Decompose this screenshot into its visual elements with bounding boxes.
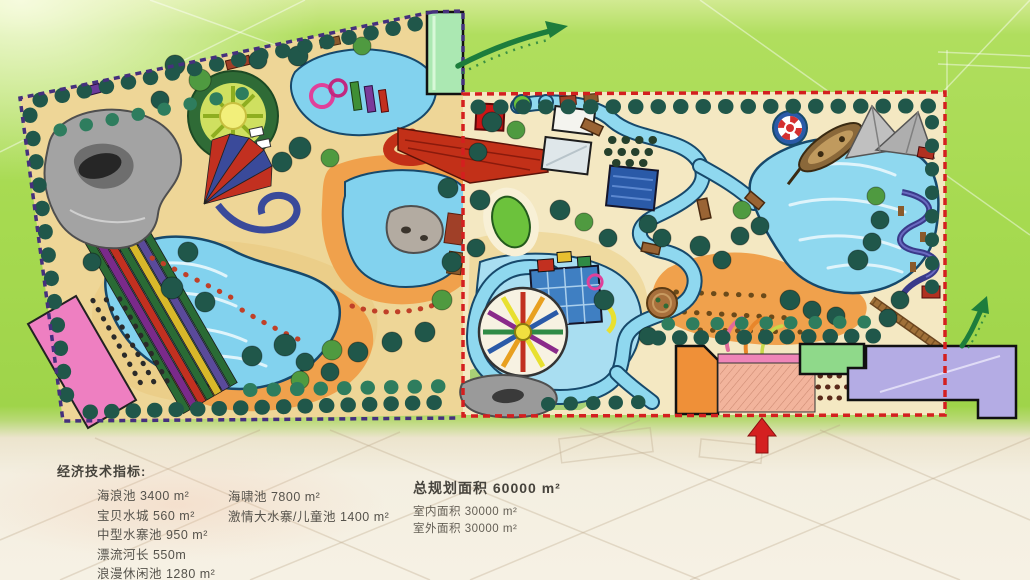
legend-column-1: 海浪池 3400 m² 宝贝水城 560 m² 中型水寨池 950 m² 漂流河…	[97, 487, 215, 580]
stat-wave-pool: 海浪池 3400 m²	[97, 487, 215, 507]
stat-kids-pool: 激情大水寨/儿童池 1400 m²	[228, 507, 389, 527]
legend-column-3: 总规划面积 60000 m² 室内面积 30000 m² 室外面积 30000 …	[413, 479, 561, 538]
stat-drift-river: 漂流河长 550m	[97, 546, 215, 566]
water-park-master-plan: 经济技术指标: 海浪池 3400 m² 宝贝水城 560 m² 中型水寨池 95…	[0, 0, 1030, 580]
legend-column-2: 海啸池 7800 m² 激情大水寨/儿童池 1400 m²	[228, 487, 389, 527]
stat-leisure-pool: 浪漫休闲池 1280 m²	[97, 565, 215, 580]
economic-indicators-legend: 经济技术指标: 海浪池 3400 m² 宝贝水城 560 m² 中型水寨池 95…	[0, 0, 1030, 580]
stat-indoor-area: 室内面积 30000 m²	[413, 504, 561, 521]
stat-outdoor-area: 室外面积 30000 m²	[413, 521, 561, 538]
stat-baby-water-town: 宝贝水城 560 m²	[97, 507, 215, 527]
stat-medium-fort-pool: 中型水寨池 950 m²	[97, 526, 215, 546]
legend-title: 经济技术指标:	[57, 461, 146, 480]
stat-tsunami-pool: 海啸池 7800 m²	[228, 487, 389, 507]
stat-total-area: 总规划面积 60000 m²	[413, 479, 561, 499]
